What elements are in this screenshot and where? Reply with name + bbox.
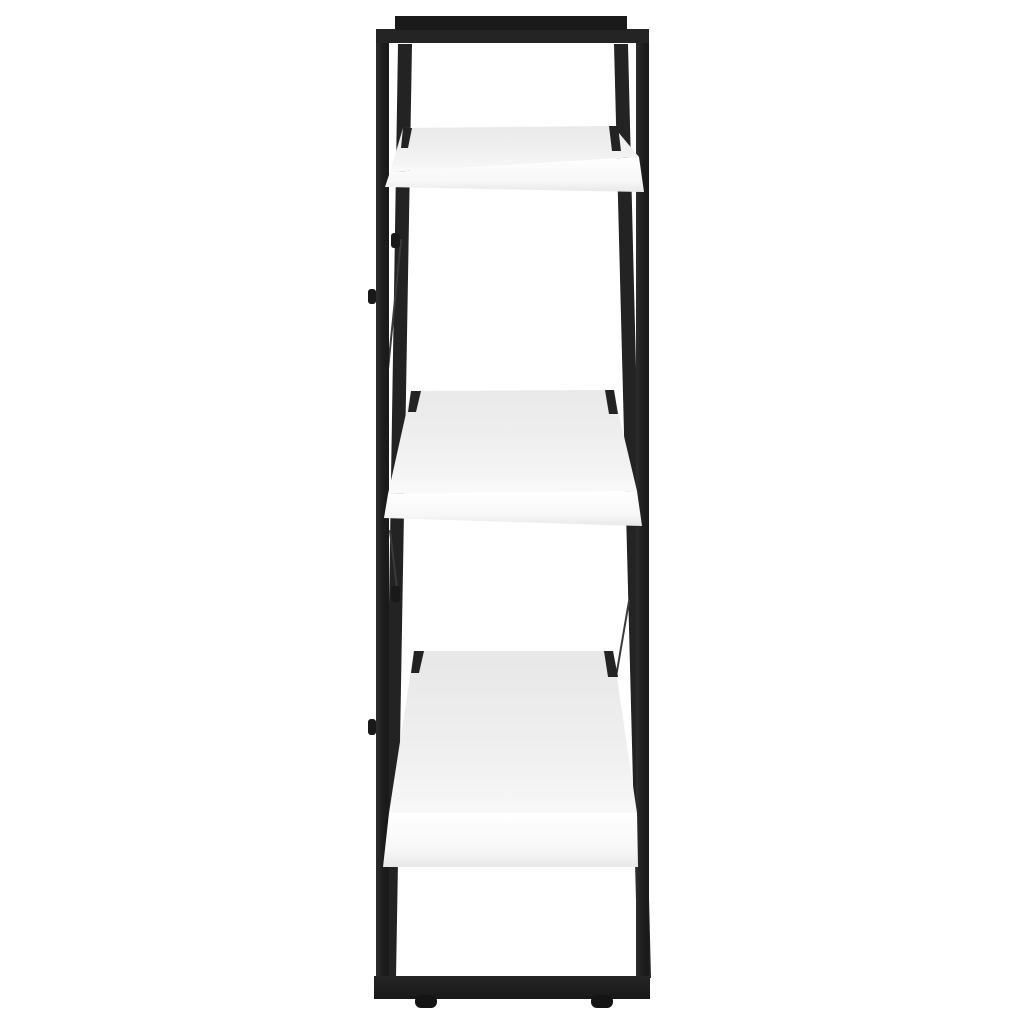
cross-brace-cable-lower (616, 601, 629, 677)
frame-top-cap (395, 16, 627, 30)
frame-top-bar (376, 29, 649, 43)
bookshelf-illustration (0, 0, 1024, 1024)
bolt-back-post-lower (391, 586, 400, 602)
shelf-2-front-edge (384, 491, 642, 526)
bolt-front-post-lower (368, 719, 376, 735)
foot-left (415, 995, 437, 1008)
product-photo-bookshelf-side-view (0, 0, 1024, 1024)
bolt-back-post-upper (391, 233, 400, 248)
foot-right (591, 995, 613, 1008)
shelf-3-front-edge (383, 813, 638, 867)
bookshelf-parts (368, 16, 651, 1008)
shelf-2-top-surface (388, 390, 637, 494)
shelf-3-top-surface (389, 651, 637, 813)
bolt-front-post-upper (368, 289, 376, 304)
